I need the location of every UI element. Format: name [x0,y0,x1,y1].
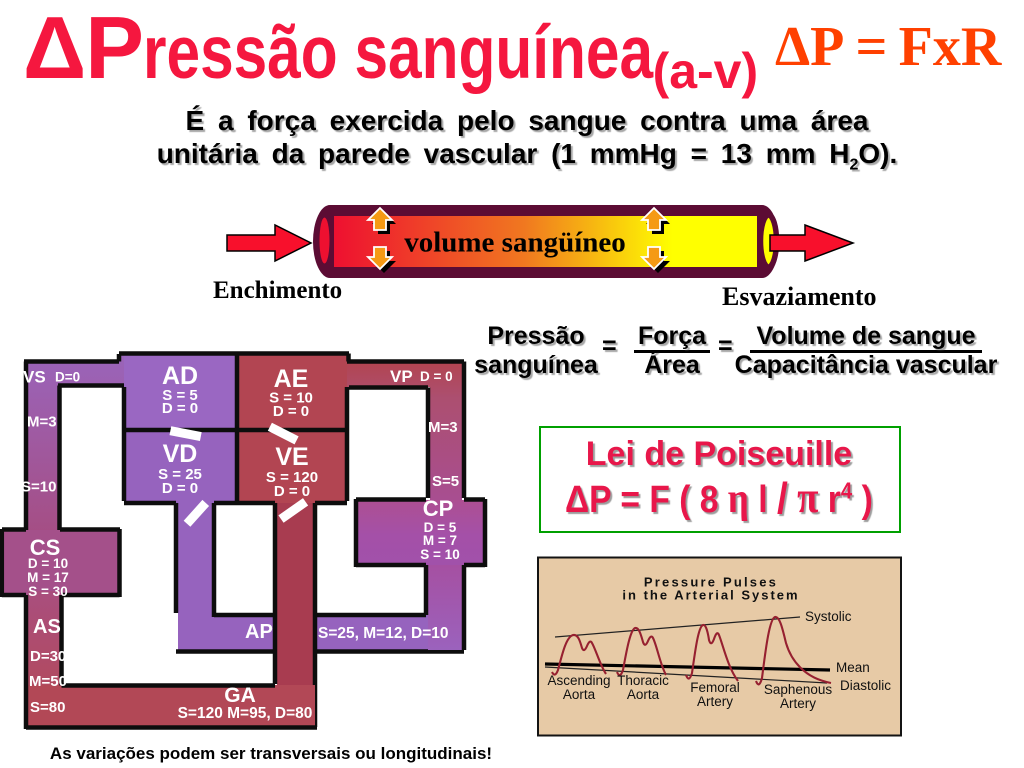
svg-text:D = 0: D = 0 [162,480,198,497]
svg-text:S=25, M=12, D=10: S=25, M=12, D=10 [318,625,449,642]
svg-text:Artery: Artery [697,694,733,709]
svg-text:Mean: Mean [836,660,870,675]
svg-text:S=5: S=5 [432,473,459,490]
svg-text:M = 17: M = 17 [27,570,69,585]
svg-text:S=80: S=80 [30,699,65,716]
svg-text:Systolic: Systolic [805,609,852,624]
svg-text:S = 30: S = 30 [28,584,67,599]
svg-text:Diastolic: Diastolic [840,678,891,693]
svg-text:CP: CP [423,496,454,521]
svg-text:VS: VS [23,368,46,387]
svg-text:AS: AS [33,616,61,638]
svg-text:Aorta: Aorta [563,687,596,702]
svg-text:D = 0: D = 0 [162,400,198,417]
svg-text:M=50: M=50 [29,673,67,690]
svg-text:VE: VE [275,443,308,471]
svg-text:Thoracic: Thoracic [617,673,669,688]
svg-text:D = 0: D = 0 [420,369,453,384]
svg-text:D = 0: D = 0 [274,483,310,500]
svg-text:GA: GA [224,684,256,707]
svg-text:AP: AP [245,621,273,643]
svg-text:M = 7: M = 7 [423,533,457,548]
svg-text:D = 0: D = 0 [273,403,309,420]
svg-text:D = 10: D = 10 [28,556,68,571]
svg-text:AD: AD [162,362,198,390]
svg-text:Artery: Artery [780,696,816,711]
svg-text:volume sangüíneo: volume sangüíneo [404,227,626,259]
svg-text:Saphenous: Saphenous [764,682,833,697]
svg-text:D=30: D=30 [30,648,66,665]
svg-text:S=120 M=95, D=80: S=120 M=95, D=80 [178,705,313,722]
svg-text:M=3: M=3 [27,414,57,431]
svg-text:D=0: D=0 [55,370,80,385]
svg-text:VD: VD [163,440,198,468]
svg-text:M=3: M=3 [428,419,458,436]
svg-text:VP: VP [390,367,413,386]
svg-text:Aorta: Aorta [627,687,660,702]
svg-text:in the Arterial System: in the Arterial System [622,588,799,603]
svg-text:Ascending: Ascending [547,673,610,688]
svg-text:S=10: S=10 [21,479,56,496]
svg-text:Femoral: Femoral [690,680,740,695]
svg-text:S = 10: S = 10 [420,547,459,562]
